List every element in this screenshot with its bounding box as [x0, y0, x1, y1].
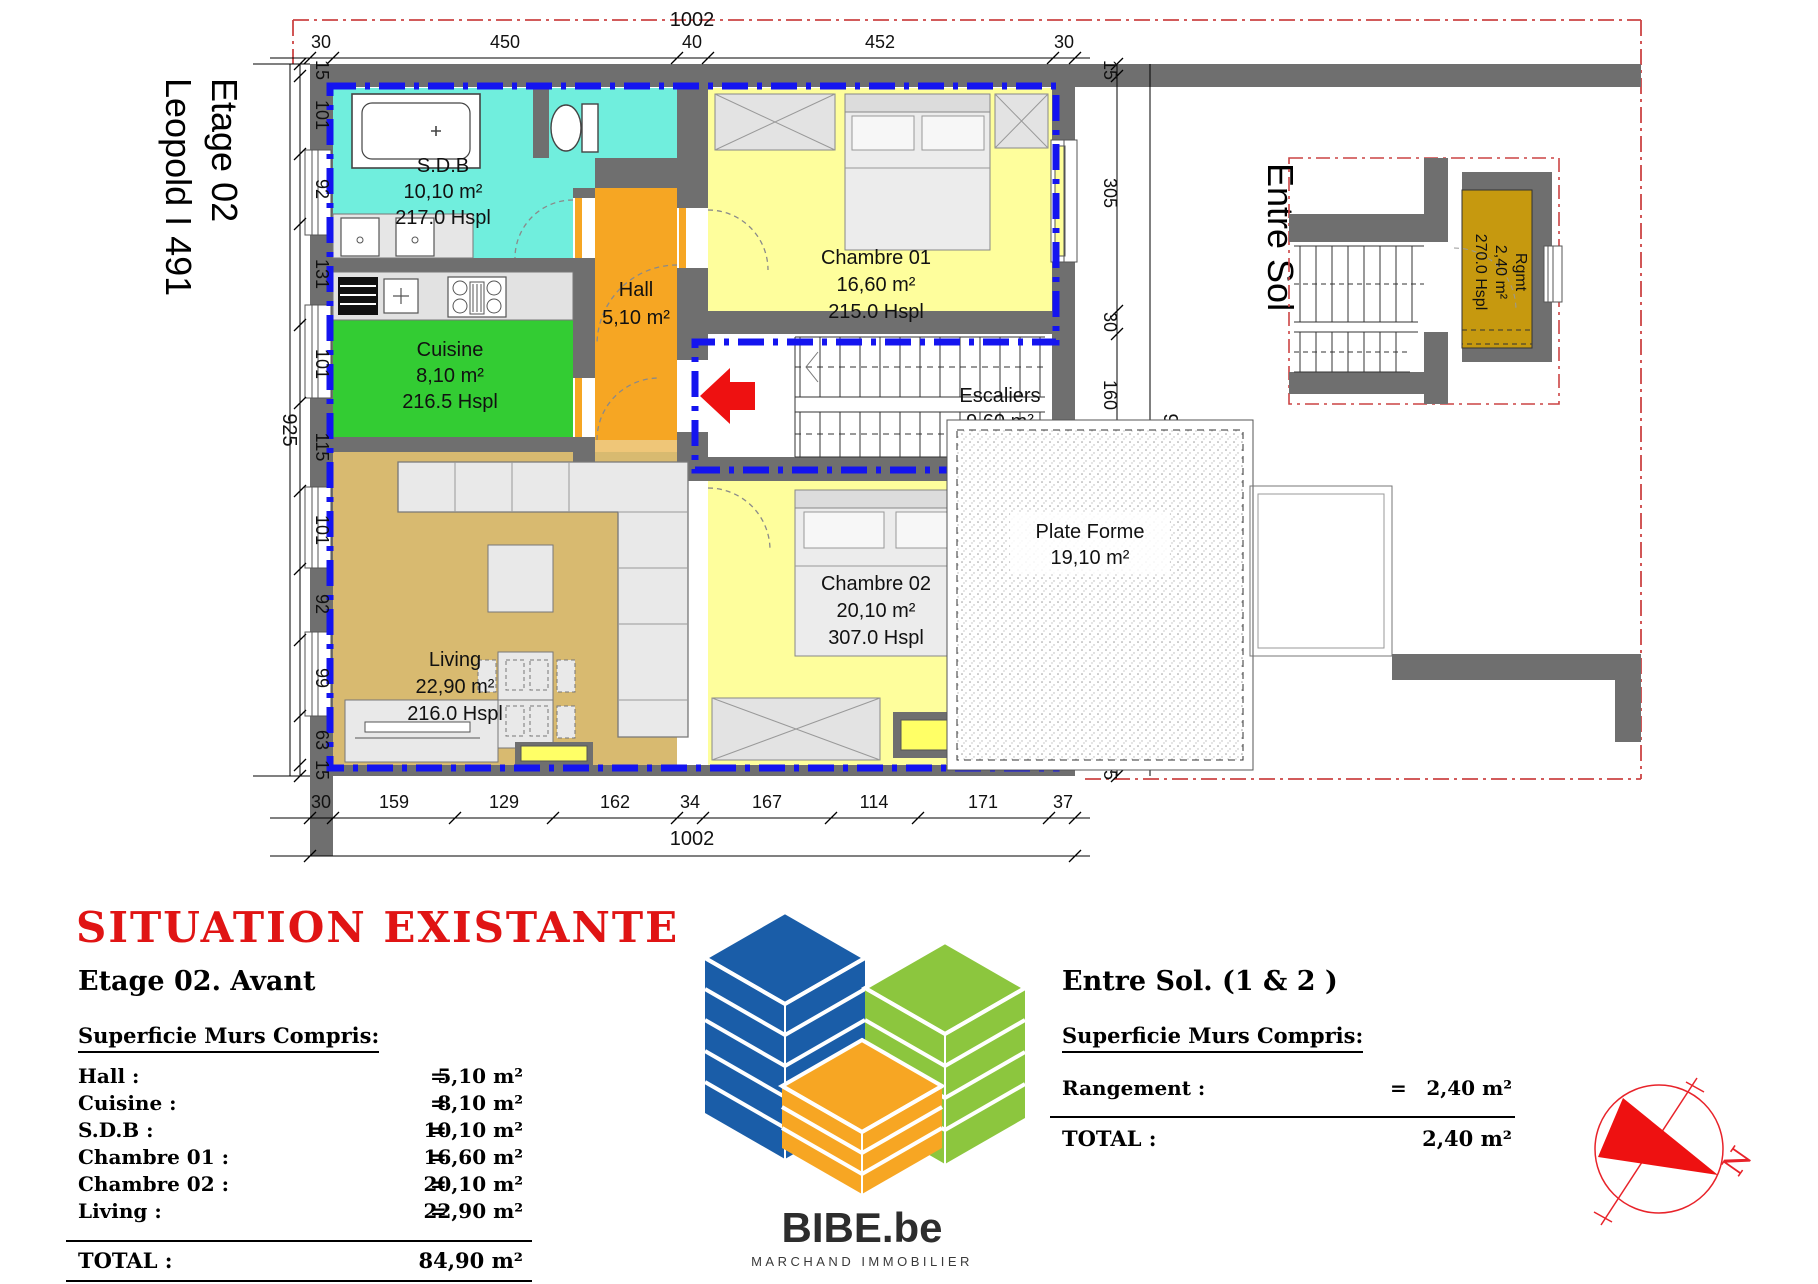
- chambre1-label: Chambre 01: [821, 247, 931, 269]
- svg-text:30: 30: [1100, 312, 1120, 332]
- table-row: Chambre 01 : = 16,60 m²: [78, 1145, 538, 1172]
- svg-text:171: 171: [968, 792, 998, 812]
- wall-cuisine-living: [333, 437, 573, 452]
- legend-right-title: Entre Sol. (1 & 2 ): [1062, 966, 1338, 997]
- svg-text:307.0 Hspl: 307.0 Hspl: [828, 627, 924, 649]
- legend-left-heading: Superficie Murs Compris:: [78, 1023, 379, 1053]
- svg-text:131: 131: [312, 259, 332, 289]
- table-row: Cuisine : = 8,10 m²: [78, 1091, 538, 1118]
- svg-text:15: 15: [312, 760, 332, 780]
- svg-text:30: 30: [311, 32, 331, 52]
- hall-label: Hall: [619, 279, 653, 301]
- svg-text:305: 305: [1100, 178, 1120, 208]
- svg-text:10,10 m²: 10,10 m²: [404, 181, 483, 203]
- toilet-icon: [551, 104, 598, 152]
- svg-text:30: 30: [311, 792, 331, 812]
- legend-right-table: Rangement : = 2,40 m²: [1062, 1076, 1522, 1103]
- dims-top: 30 450 40 452 30 1002: [270, 9, 1090, 64]
- svg-text:20,10 m²: 20,10 m²: [837, 600, 916, 622]
- neighbor-structures: [1250, 486, 1641, 742]
- total-rule-bottom: [66, 1280, 532, 1282]
- svg-text:217.0 Hspl: 217.0 Hspl: [395, 207, 491, 229]
- svg-text:Plate Forme: Plate Forme: [1036, 521, 1145, 543]
- legend-left-table: Hall : = 5,10 m² Cuisine : = 8,10 m² S.D…: [78, 1064, 538, 1226]
- brand-tagline: MARCHAND IMMOBILIER: [751, 1254, 973, 1269]
- svg-text:19,10 m²: 19,10 m²: [1051, 547, 1130, 569]
- svg-text:92: 92: [312, 179, 332, 199]
- living-label: Living: [429, 649, 481, 671]
- table-row: S.D.B : = 10,10 m²: [78, 1118, 538, 1145]
- neighbor-top-wall: [1075, 64, 1641, 87]
- chambre1-bed-icon: [845, 94, 990, 250]
- svg-text:2,40 m²: 2,40 m²: [1492, 245, 1509, 300]
- compass-icon: N: [1594, 1078, 1760, 1225]
- svg-text:15: 15: [312, 60, 332, 80]
- svg-text:8,10 m²: 8,10 m²: [416, 365, 484, 387]
- svg-text:37: 37: [1053, 792, 1073, 812]
- legend-right-total: TOTAL : 2,40 m²: [1062, 1126, 1515, 1151]
- svg-text:216.0 Hspl: 216.0 Hspl: [407, 703, 503, 725]
- plate-forme: Plate Forme 19,10 m²: [947, 420, 1253, 770]
- dims-bottom: 30 159 129 162 34 167 114 171 37 1002: [270, 792, 1090, 862]
- svg-text:Rgmt: Rgmt: [1512, 253, 1529, 292]
- svg-text:34: 34: [680, 792, 700, 812]
- table-row: Chambre 02 : = 20,10 m²: [78, 1172, 538, 1199]
- kitchen-counter-icon: [333, 272, 573, 320]
- table-row: Living : = 22,90 m²: [78, 1199, 538, 1226]
- svg-text:63: 63: [312, 730, 332, 750]
- floor-plan-sheet: S.D.B 10,10 m² 217.0 Hspl Cuisine 8,10 m…: [0, 0, 1818, 1284]
- bibe-logo: BIBE.be MARCHAND IMMOBILIER: [705, 912, 1025, 1269]
- chambre2-label: Chambre 02: [821, 573, 931, 595]
- svg-text:215.0 Hspl: 215.0 Hspl: [828, 301, 924, 323]
- legend-right-heading: Superficie Murs Compris:: [1062, 1023, 1363, 1053]
- svg-text:1002: 1002: [670, 9, 715, 31]
- sheet-title: SITUATION EXISTANTE: [76, 903, 679, 952]
- svg-text:101: 101: [312, 349, 332, 379]
- entry-arrow-icon: [700, 368, 755, 424]
- svg-text:1002: 1002: [670, 828, 715, 850]
- svg-text:167: 167: [752, 792, 782, 812]
- svg-text:5,10 m²: 5,10 m²: [602, 307, 670, 329]
- living-window-bottom: [515, 742, 593, 765]
- entre-sol-inset: Rgmt 2,40 m² 270.0 Hspl: [1289, 158, 1562, 404]
- svg-text:452: 452: [865, 32, 895, 52]
- sdb-label: S.D.B: [417, 155, 469, 177]
- svg-text:92: 92: [312, 594, 332, 614]
- svg-text:114: 114: [860, 792, 889, 812]
- svg-text:162: 162: [600, 792, 630, 812]
- svg-text:99: 99: [312, 668, 332, 688]
- escaliers-label: Escaliers: [959, 385, 1040, 407]
- svg-text:270.0 Hspl: 270.0 Hspl: [1472, 234, 1489, 311]
- svg-text:129: 129: [489, 792, 519, 812]
- svg-text:216.5 Hspl: 216.5 Hspl: [402, 391, 498, 413]
- svg-text:15: 15: [1100, 60, 1120, 80]
- table-row: Rangement : = 2,40 m²: [1062, 1076, 1522, 1103]
- svg-text:159: 159: [379, 792, 409, 812]
- svg-text:30: 30: [1054, 32, 1074, 52]
- svg-text:40: 40: [682, 32, 702, 52]
- total-rule-right: [1050, 1116, 1515, 1118]
- legend-left-total: TOTAL : 84,90 m²: [78, 1248, 538, 1273]
- svg-text:16,60 m²: 16,60 m²: [837, 274, 916, 296]
- coffee-table-icon: [488, 545, 553, 612]
- wall-sdb-cuisine: [333, 258, 573, 272]
- floor-side-label: Etage 02 Leopold I 491: [158, 78, 245, 296]
- svg-text:115: 115: [312, 433, 332, 462]
- svg-text:101: 101: [312, 515, 332, 545]
- brand-name: BIBE.be: [781, 1204, 942, 1251]
- cuisine-label: Cuisine: [417, 339, 484, 361]
- legend-left-subtitle: Etage 02. Avant: [78, 966, 316, 997]
- total-rule-top: [66, 1240, 532, 1242]
- svg-text:101: 101: [312, 100, 332, 130]
- table-row: Hall : = 5,10 m²: [78, 1064, 538, 1091]
- svg-text:160: 160: [1100, 380, 1120, 410]
- svg-text:450: 450: [490, 32, 520, 52]
- svg-text:22,90 m²: 22,90 m²: [416, 676, 495, 698]
- svg-text:925: 925: [278, 413, 300, 446]
